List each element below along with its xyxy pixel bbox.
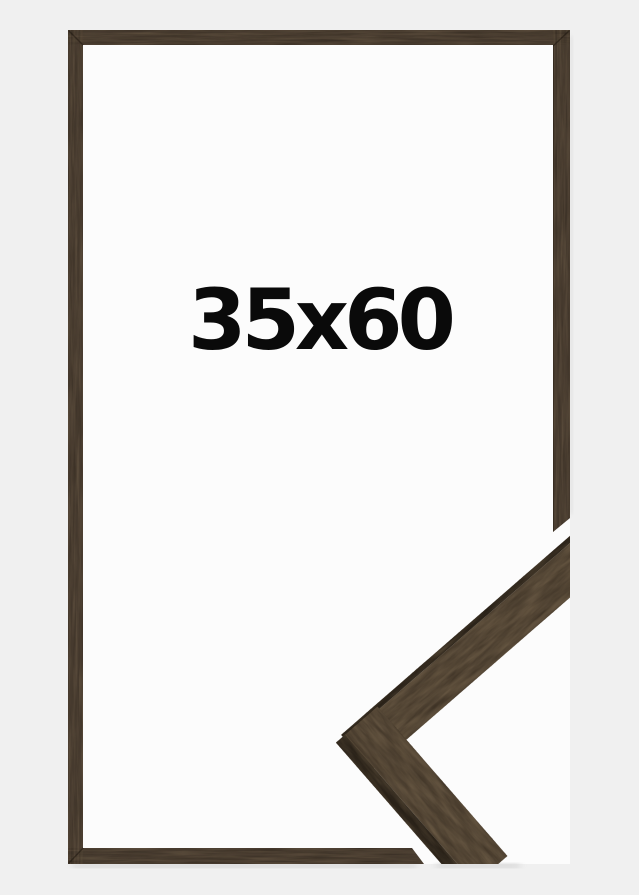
frame-graphic [0, 0, 639, 895]
frame-size-label: 35x60 [0, 278, 639, 362]
product-image: 35x60 [0, 0, 639, 895]
frame-inner-opening [83, 45, 570, 864]
